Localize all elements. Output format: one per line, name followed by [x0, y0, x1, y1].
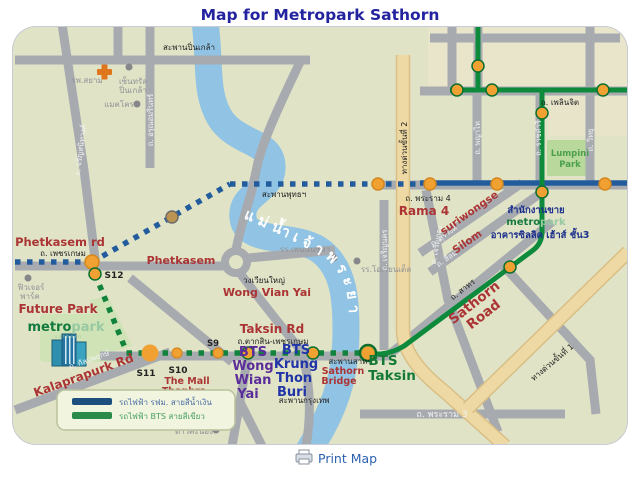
label-s12: S12	[104, 271, 123, 281]
legend-swatch-bts	[72, 412, 112, 419]
station-dot	[451, 84, 463, 96]
label-zuellig: อาคารซิลลิค เฮ้าส์ ชั้น3	[491, 227, 590, 241]
label-central-2: ปิ่นเกล้า	[119, 84, 147, 95]
station-dot	[424, 178, 436, 190]
station-dot	[472, 60, 484, 72]
label-rama3: ถ. พระราม 3	[416, 410, 467, 420]
label-rd-arun: ถ. อรุณอมรินทร์	[146, 94, 155, 146]
logo-sub: s a t h o r n	[55, 334, 81, 340]
label-wongwianyai-th: วงเวียนใหญ่	[243, 276, 285, 285]
label-saphan-krungthep: สะพานกรุงเทพ	[279, 396, 330, 405]
label-future-park-en: Future Park	[18, 302, 98, 316]
label-witthayu: ถ. วิทยุ	[586, 129, 595, 152]
label-wongwianyai-en: Wong Vian Yai	[223, 286, 311, 299]
station-dot	[597, 84, 609, 96]
poi-dot	[134, 101, 141, 108]
map-canvas: Map for Metropark Sathorn	[0, 0, 640, 480]
label-saphan-pinklao: สะพานปิ่นเกล้า	[163, 41, 215, 52]
label-ktb-krung: Krung	[274, 357, 318, 372]
poi-dot	[354, 258, 361, 265]
legend-label-bts: รถไฟฟ้า BTS สายสีเขียว	[119, 412, 205, 421]
station-dot	[599, 178, 611, 190]
poi-dot	[25, 275, 32, 282]
label-ktb-thon: Thon	[276, 371, 312, 386]
label-taksin-rd-en: Taksin Rd	[240, 322, 305, 336]
logo-park: park	[71, 320, 104, 335]
station-dot	[172, 348, 182, 358]
label-taksin-bts: BTS	[368, 353, 397, 369]
logo-small-metro: metro	[506, 217, 540, 228]
label-future-park-th2: พาร์ค	[20, 291, 39, 301]
station-dot	[491, 178, 503, 190]
station-dot	[372, 178, 384, 190]
legend-label-mrt: รถไฟฟ้า รฟม. สายสีน้ำเงิน	[119, 396, 212, 407]
label-taksin-name: Taksin	[368, 368, 416, 384]
station-dot	[89, 268, 101, 280]
label-saphan-phut: สะพานพุทธฯ	[262, 190, 306, 199]
legend-box	[57, 390, 235, 430]
label-rama4-th: ถ. พระราม 4	[405, 194, 451, 203]
logo-metro: metro	[27, 320, 71, 335]
label-sathorn-bridge-2: Bridge	[321, 376, 356, 387]
label-expressway2: ทางด่วนขั้นที่ 2	[398, 122, 409, 175]
print-map-link[interactable]: Print Map	[296, 450, 377, 466]
page-title: Map for Metropark Sathorn	[201, 6, 440, 24]
station-dot	[536, 107, 548, 119]
label-rama4-en: Rama 4	[399, 204, 449, 218]
label-wwy-yai: Yai	[236, 387, 258, 402]
station-dot-large	[142, 345, 159, 362]
label-lumpini-2: Park	[559, 160, 581, 170]
station-dot	[213, 348, 223, 358]
label-s9: S9	[207, 339, 219, 349]
label-sales-office: สำนักงานขาย	[507, 205, 564, 216]
printer-icon	[296, 450, 312, 464]
map-area: สะพานปิ่นเกล้า รพ.สยาม เซ็นทรัล ปิ่นเกล้…	[12, 22, 628, 452]
print-map-label: Print Map	[318, 451, 377, 466]
legend: รถไฟฟ้า รฟม. สายสีน้ำเงิน รถไฟฟ้า BTS สา…	[57, 390, 235, 430]
label-phetkasem-th: ถ. เพชรเกษม	[40, 249, 86, 258]
label-phetkasem-rd-en: Phetkasem rd	[15, 235, 105, 249]
label-saphan-sathorn: สะพานสาทร	[328, 357, 372, 366]
wongwianyai-roundabout	[225, 251, 247, 273]
poi-dot	[126, 64, 133, 71]
label-phetkasem-en: Phetkasem	[147, 254, 216, 267]
metropark-logo: metropark	[27, 320, 104, 335]
label-rd-charoen-nakhon: ถ. เจริญนคร	[380, 230, 389, 271]
station-dot	[536, 186, 548, 198]
label-s10: S10	[168, 366, 187, 376]
label-s11: S11	[136, 369, 155, 379]
label-ktb-bts: BTS	[282, 343, 310, 358]
label-phayathai: ถ. พญาไท	[473, 121, 482, 155]
station-dot	[85, 255, 99, 269]
label-lumpini-1: Lumpini	[551, 149, 589, 159]
station-dot	[504, 261, 516, 273]
label-wwy-wong: Wong	[232, 359, 273, 374]
label-ploenchit: ถ. เพลินจิต	[541, 98, 579, 107]
label-future-park-th1: ฟิวเจอร์	[17, 282, 45, 292]
label-central-1: เซ็นทรัล	[119, 76, 147, 86]
label-wwy-wian: Wian	[235, 373, 272, 388]
label-makro: แมคโคร	[104, 99, 134, 109]
logo-small-park: park	[540, 217, 566, 228]
station-dot	[166, 211, 178, 223]
label-ratchadamri: ถ. ราชดำริ	[534, 120, 543, 156]
station-dot	[486, 84, 498, 96]
legend-swatch-mrt	[72, 398, 112, 405]
label-wwy-bts: BTS	[239, 345, 267, 360]
label-hospital: รพ.สยาม	[71, 76, 102, 85]
metropark-logo-small: metropark	[506, 217, 566, 228]
page: Map for Metropark Sathorn	[0, 0, 640, 480]
